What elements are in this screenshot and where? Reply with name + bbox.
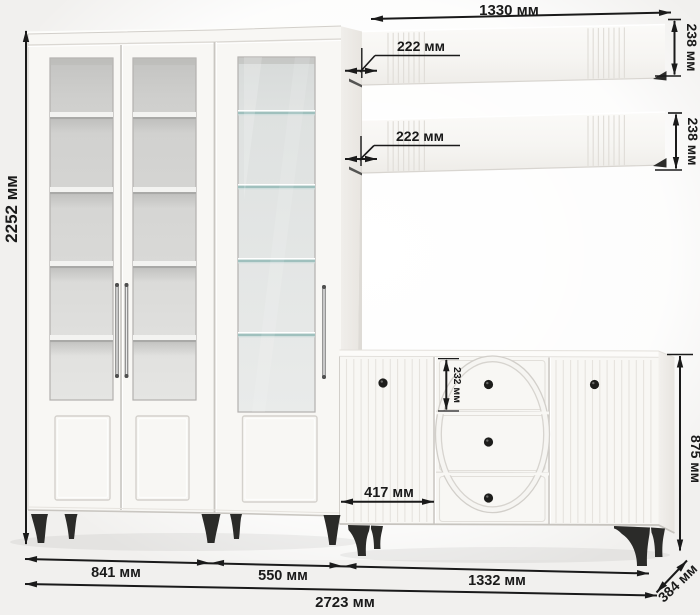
- svg-text:417 мм: 417 мм: [364, 485, 414, 501]
- svg-text:238 мм: 238 мм: [684, 24, 700, 72]
- svg-text:222 мм: 222 мм: [396, 128, 444, 144]
- svg-text:238 мм: 238 мм: [685, 118, 700, 166]
- svg-text:232 мм: 232 мм: [451, 367, 463, 403]
- svg-text:2252 мм: 2252 мм: [2, 175, 21, 243]
- svg-text:222 мм: 222 мм: [397, 38, 445, 54]
- svg-text:875 мм: 875 мм: [688, 435, 700, 483]
- svg-text:1332 мм: 1332 мм: [468, 573, 526, 589]
- svg-text:550 мм: 550 мм: [258, 568, 308, 584]
- svg-text:1330 мм: 1330 мм: [479, 2, 539, 19]
- svg-text:841 мм: 841 мм: [91, 565, 141, 581]
- svg-text:2723 мм: 2723 мм: [315, 594, 375, 610]
